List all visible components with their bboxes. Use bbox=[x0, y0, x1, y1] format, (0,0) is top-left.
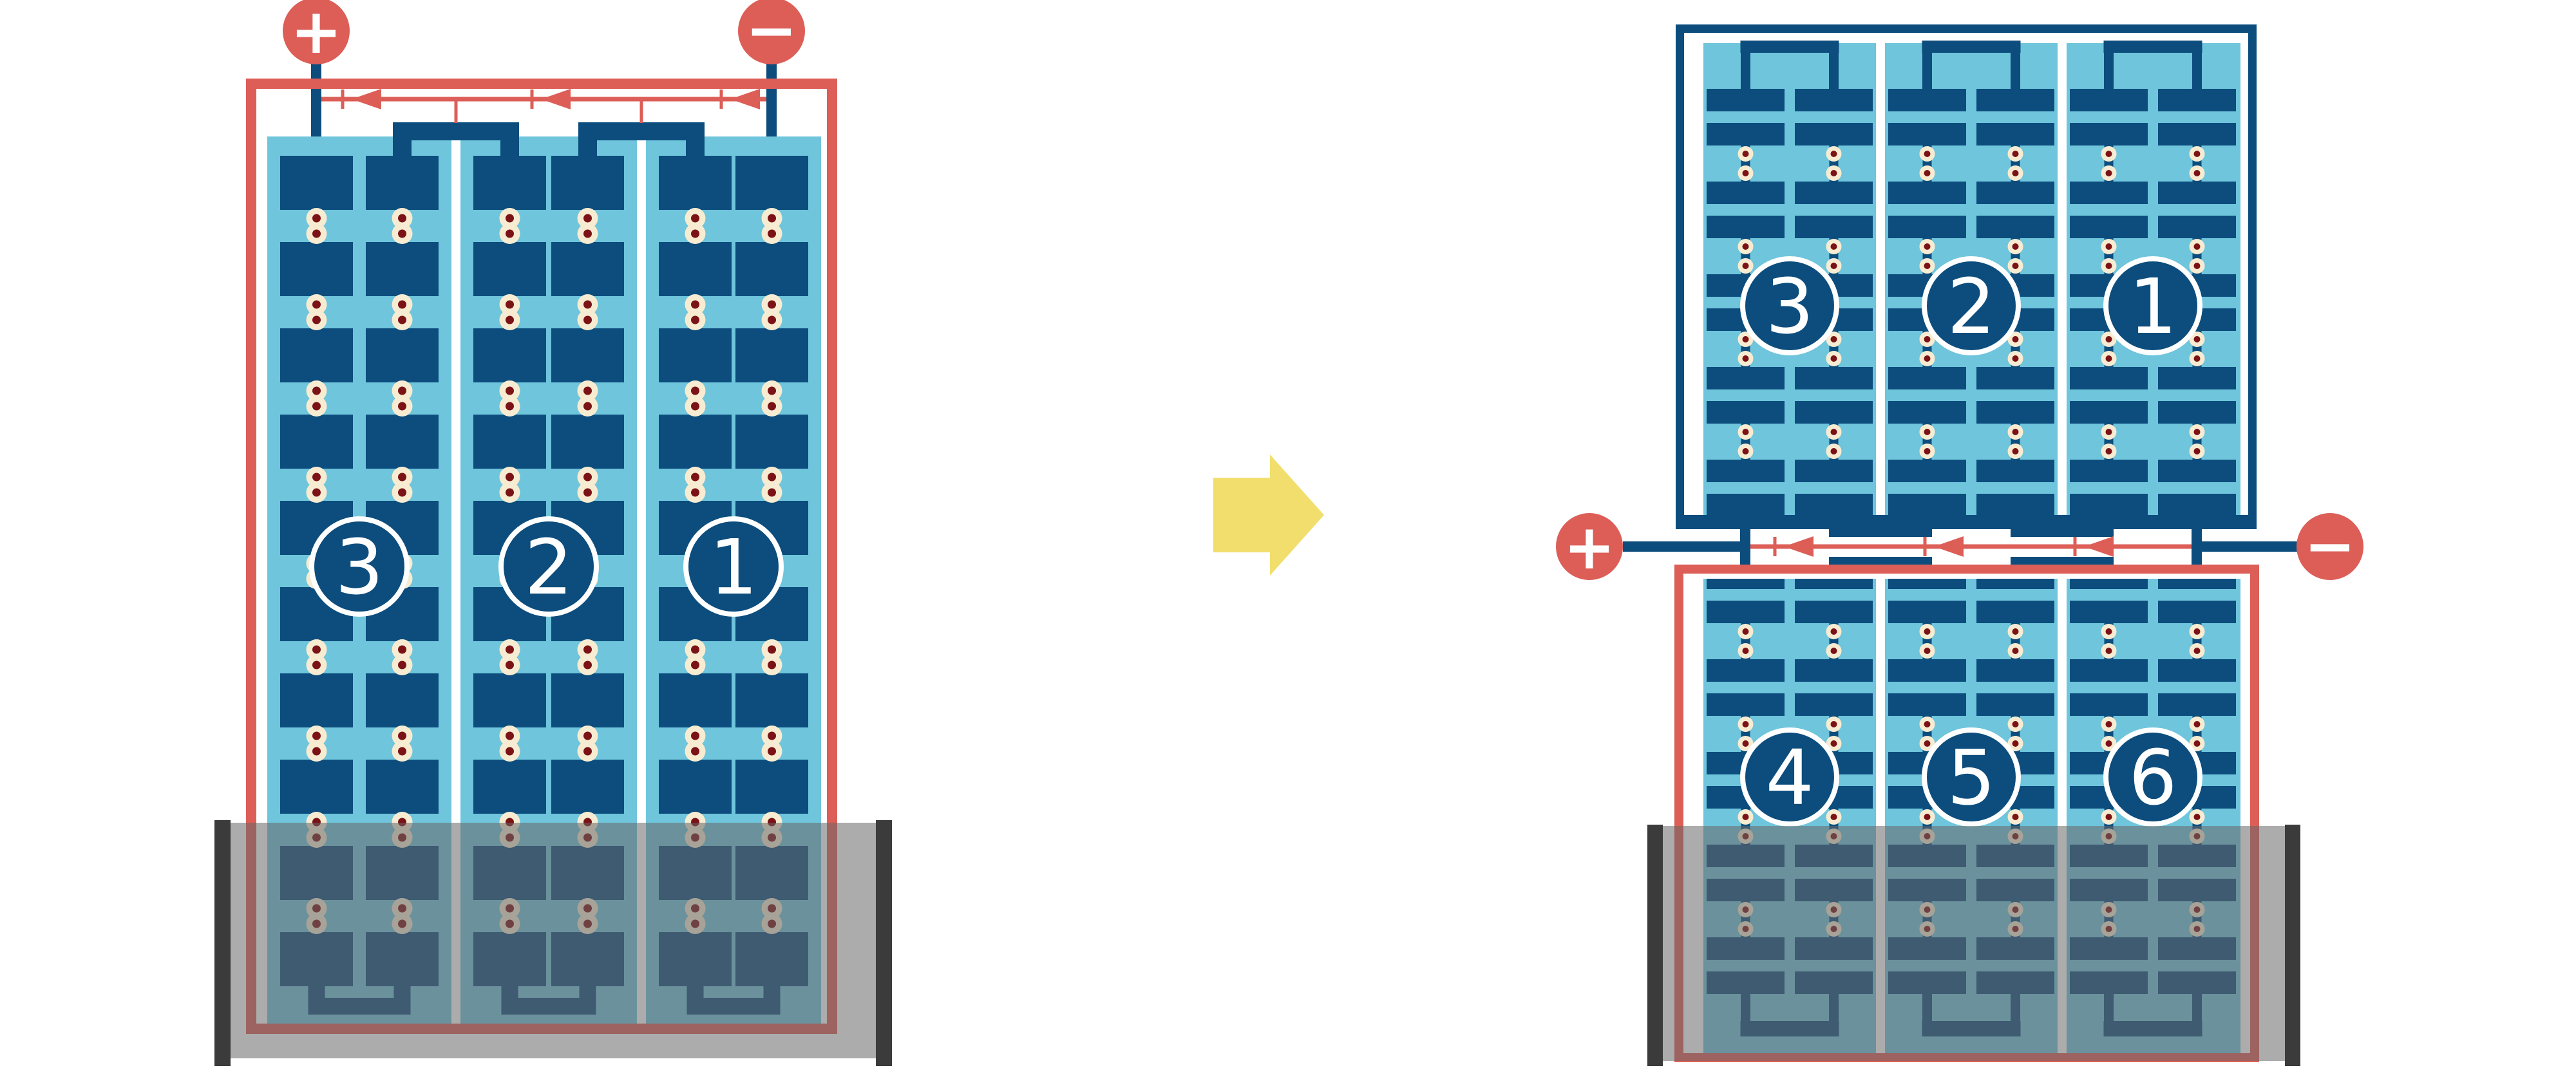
cell-connector-leg bbox=[500, 140, 519, 169]
battery-plate bbox=[2070, 89, 2148, 111]
rivet-pin bbox=[506, 316, 514, 324]
rivet-pin bbox=[1924, 355, 1931, 362]
rivet-pin bbox=[2106, 429, 2112, 435]
rivet-pin bbox=[1924, 814, 1931, 820]
battery-plate bbox=[1707, 659, 1785, 682]
rivet-pin bbox=[691, 661, 699, 670]
left-tray bbox=[214, 820, 892, 1066]
rivet-pin bbox=[1743, 336, 1749, 342]
rivet-pin bbox=[398, 402, 406, 411]
tray-wall-left bbox=[1647, 825, 1663, 1066]
rivet-pin bbox=[1831, 814, 1837, 820]
rivet-pin bbox=[506, 747, 514, 756]
rivet-pin bbox=[312, 301, 321, 309]
rivet-pin bbox=[768, 301, 776, 309]
right-minus-terminal: − bbox=[2297, 510, 2363, 582]
rivet-pin bbox=[1831, 429, 1837, 435]
rivet-pin bbox=[1743, 721, 1749, 727]
battery-plate bbox=[659, 242, 732, 296]
rivet-pin bbox=[2194, 628, 2201, 635]
rivet-pin bbox=[1831, 336, 1837, 342]
battery-plate bbox=[735, 673, 808, 727]
battery-plate bbox=[1707, 460, 1785, 482]
rivet-pin bbox=[583, 402, 592, 411]
rivet-pin bbox=[2106, 721, 2112, 727]
current-arrowhead-icon bbox=[1934, 536, 1964, 557]
rivet-pin bbox=[398, 214, 406, 223]
battery-plate bbox=[1976, 89, 2054, 111]
rivet-pin bbox=[768, 646, 776, 654]
rivet-pin bbox=[1924, 721, 1931, 727]
rivet-pin bbox=[398, 646, 406, 654]
battery-plate bbox=[1888, 182, 1966, 204]
battery-plate bbox=[280, 328, 353, 382]
rivet-pin bbox=[2194, 721, 2201, 727]
battery-plate bbox=[473, 760, 546, 814]
rivet-pin bbox=[2194, 648, 2201, 654]
rivet-pin bbox=[768, 387, 776, 395]
rivet-pin bbox=[398, 747, 406, 756]
rivet-pin bbox=[691, 214, 699, 223]
battery-plate bbox=[1976, 367, 2054, 389]
battery-plate bbox=[473, 415, 546, 469]
u-connector-leg bbox=[1922, 53, 1932, 90]
rivet-pin bbox=[2012, 151, 2019, 157]
u-connector-bar bbox=[2104, 41, 2202, 53]
rivet-pin bbox=[1924, 151, 1931, 157]
battery-plate bbox=[735, 415, 808, 469]
rivet-pin bbox=[1924, 648, 1931, 654]
right-tray bbox=[1647, 825, 2300, 1066]
rivet-pin bbox=[2106, 355, 2112, 362]
rivet-pin bbox=[1924, 243, 1931, 250]
rivet-pin bbox=[1924, 170, 1931, 176]
rivet-pin bbox=[583, 230, 592, 238]
battery-plate bbox=[1888, 89, 1966, 111]
rivet-pin bbox=[398, 316, 406, 324]
rivet-pin bbox=[768, 316, 776, 324]
rivet-pin bbox=[691, 301, 699, 309]
cell-number-label: 3 bbox=[1765, 262, 1814, 351]
rivet-pin bbox=[506, 732, 514, 740]
rivet-pin bbox=[506, 230, 514, 238]
current-arrowhead-icon bbox=[1784, 536, 1814, 557]
cell-number-label: 3 bbox=[335, 523, 383, 612]
u-connector-leg bbox=[2011, 53, 2020, 90]
rivet-pin bbox=[398, 489, 406, 497]
battery-plate bbox=[366, 415, 439, 469]
junction-stub-left bbox=[1740, 529, 1750, 565]
rivet-pin bbox=[2012, 170, 2019, 176]
battery-plate bbox=[2070, 579, 2148, 589]
plus-terminal-label: + bbox=[290, 0, 342, 68]
top-box-bottom-busbar bbox=[1676, 515, 2257, 529]
minus-terminal-label: − bbox=[746, 0, 797, 66]
rivet-pin bbox=[583, 301, 592, 309]
rivet-pin bbox=[583, 747, 592, 756]
rivet-pin bbox=[768, 732, 776, 740]
cell-connector-bar bbox=[578, 122, 705, 140]
right-bottom-badge-6: 6 bbox=[2106, 730, 2200, 824]
current-drop-line bbox=[640, 101, 643, 123]
right-bottom-badge-5: 5 bbox=[1924, 730, 2018, 824]
rivet-pin bbox=[1743, 151, 1749, 157]
rivet-pin bbox=[2194, 429, 2201, 435]
battery-plate bbox=[1795, 659, 1873, 682]
battery-plate bbox=[366, 328, 439, 382]
battery-plate bbox=[2158, 579, 2236, 589]
battery-plate bbox=[659, 328, 732, 382]
junction-stub-right bbox=[2192, 529, 2202, 565]
battery-plate bbox=[2158, 89, 2236, 111]
rivet-pin bbox=[1924, 740, 1931, 747]
left-cell-badge-1: 1 bbox=[686, 519, 781, 614]
battery-plate bbox=[280, 673, 353, 727]
rivet-pin bbox=[398, 473, 406, 482]
tray-wall-left bbox=[214, 820, 231, 1066]
rivet-pin bbox=[506, 489, 514, 497]
rivet-pin bbox=[691, 732, 699, 740]
battery-plate bbox=[551, 242, 624, 296]
rivet-pin bbox=[1831, 628, 1837, 635]
tray-wall-right bbox=[2285, 825, 2300, 1066]
rivet-pin bbox=[506, 402, 514, 411]
battery-plate bbox=[551, 328, 624, 382]
right-plus-terminal: + bbox=[1556, 511, 1623, 583]
rivet-pin bbox=[312, 402, 321, 411]
current-tick bbox=[341, 89, 345, 109]
rivet-pin bbox=[1743, 740, 1749, 747]
battery-plate bbox=[735, 156, 808, 210]
rivet-pin bbox=[1743, 170, 1749, 176]
rivet-pin bbox=[1924, 263, 1931, 269]
rivet-pin bbox=[312, 661, 321, 670]
current-line bbox=[1750, 545, 2192, 549]
current-arrowhead-icon bbox=[730, 89, 760, 109]
rivet-pin bbox=[2106, 628, 2112, 635]
rivet-pin bbox=[1831, 721, 1837, 727]
left-battery-unit: + − 3 2 1 bbox=[214, 0, 892, 1066]
rivet-pin bbox=[1831, 740, 1837, 747]
battery-diagram: + − 3 2 1 bbox=[0, 0, 2576, 1068]
junction-tab bbox=[2011, 557, 2114, 565]
rivet-pin bbox=[768, 402, 776, 411]
battery-plate bbox=[280, 156, 353, 210]
rivet-pin bbox=[1743, 355, 1749, 362]
rivet-pin bbox=[398, 661, 406, 670]
rivet-pin bbox=[2012, 628, 2019, 635]
rivet-pin bbox=[1831, 263, 1837, 269]
battery-plate bbox=[1888, 367, 1966, 389]
right-current-arrow-line bbox=[1750, 536, 2192, 557]
current-tick bbox=[1924, 537, 1927, 556]
current-tick bbox=[2074, 537, 2077, 556]
diagram-canvas: + − 3 2 1 bbox=[0, 0, 2576, 1068]
rivet-pin bbox=[2012, 429, 2019, 435]
rivet-pin bbox=[691, 473, 699, 482]
battery-plate bbox=[1888, 579, 1966, 589]
rivet-pin bbox=[1743, 263, 1749, 269]
battery-plate bbox=[280, 242, 353, 296]
rivet-pin bbox=[768, 747, 776, 756]
battery-plate bbox=[2158, 182, 2236, 204]
rivet-pin bbox=[312, 489, 321, 497]
rivet-pin bbox=[312, 732, 321, 740]
current-arrowhead-icon bbox=[352, 89, 381, 109]
cell-number-label: 2 bbox=[524, 523, 573, 612]
u-connector-leg bbox=[2192, 53, 2202, 90]
u-connector-leg bbox=[1829, 53, 1839, 90]
battery-plate bbox=[1795, 182, 1873, 204]
tray-water-overlay bbox=[1663, 826, 2285, 1061]
rivet-pin bbox=[1831, 355, 1837, 362]
rivet-pin bbox=[2012, 336, 2019, 342]
rivet-pin bbox=[1831, 448, 1837, 454]
current-tick bbox=[720, 89, 723, 109]
rivet-pin bbox=[1831, 648, 1837, 654]
rivet-pin bbox=[2012, 648, 2019, 654]
battery-plate bbox=[2158, 494, 2236, 516]
battery-plate bbox=[1795, 579, 1873, 589]
battery-plate bbox=[2158, 659, 2236, 682]
battery-plate bbox=[2070, 367, 2148, 389]
rivet-pin bbox=[1743, 648, 1749, 654]
rivet-pin bbox=[2012, 740, 2019, 747]
battery-plate bbox=[1976, 460, 2054, 482]
current-arrowhead-icon bbox=[2084, 536, 2114, 557]
rivet-pin bbox=[506, 473, 514, 482]
battery-plate bbox=[473, 673, 546, 727]
battery-plate bbox=[366, 760, 439, 814]
battery-plate bbox=[473, 242, 546, 296]
rivet-pin bbox=[2012, 814, 2019, 820]
rivet-pin bbox=[691, 316, 699, 324]
battery-plate bbox=[2070, 659, 2148, 682]
battery-plate bbox=[735, 328, 808, 382]
battery-plate bbox=[1795, 89, 1873, 111]
battery-plate bbox=[1795, 367, 1873, 389]
rivet-pin bbox=[2194, 448, 2201, 454]
battery-plate bbox=[551, 415, 624, 469]
rivet-pin bbox=[1831, 243, 1837, 250]
rivet-pin bbox=[691, 747, 699, 756]
battery-plate bbox=[280, 760, 353, 814]
rivet-pin bbox=[398, 387, 406, 395]
rivet-pin bbox=[1831, 170, 1837, 176]
battery-plate bbox=[366, 242, 439, 296]
cell-number-label: 6 bbox=[2128, 733, 2177, 822]
rivet-pin bbox=[1743, 448, 1749, 454]
rivet-pin bbox=[768, 661, 776, 670]
rivet-pin bbox=[583, 732, 592, 740]
current-drop-line bbox=[455, 101, 458, 123]
current-arrowhead-icon bbox=[541, 89, 571, 109]
battery-plate bbox=[1888, 460, 1966, 482]
rivet-pin bbox=[1924, 336, 1931, 342]
battery-plate bbox=[473, 328, 546, 382]
battery-plate bbox=[1707, 494, 1785, 516]
rivet-pin bbox=[312, 646, 321, 654]
rivet-pin bbox=[2194, 355, 2201, 362]
plus-terminal-label: + bbox=[1564, 511, 1615, 583]
rivet-pin bbox=[1743, 814, 1749, 820]
rivet-pin bbox=[2194, 263, 2201, 269]
junction-tab bbox=[1829, 557, 1932, 565]
rivet-pin bbox=[1743, 243, 1749, 250]
rivet-pin bbox=[506, 661, 514, 670]
right-top-badge-3: 3 bbox=[1743, 259, 1837, 353]
rivet-pin bbox=[2012, 263, 2019, 269]
transform-arrow-icon bbox=[1213, 454, 1324, 576]
rivet-pin bbox=[2106, 243, 2112, 250]
rivet-pin bbox=[506, 214, 514, 223]
battery-plate bbox=[1707, 367, 1785, 389]
rivet-pin bbox=[768, 489, 776, 497]
top-box-cell-separator bbox=[2058, 43, 2067, 516]
current-tick bbox=[1774, 537, 1777, 556]
rivet-pin bbox=[2106, 448, 2112, 454]
tray-wall-right bbox=[876, 820, 892, 1066]
u-connector-leg bbox=[1741, 53, 1750, 90]
battery-plate bbox=[1707, 579, 1785, 589]
battery-plate bbox=[1976, 182, 2054, 204]
u-connector-leg bbox=[2104, 53, 2114, 90]
battery-plate bbox=[659, 673, 732, 727]
battery-plate bbox=[2158, 460, 2236, 482]
rivet-pin bbox=[2106, 151, 2112, 157]
rivet-pin bbox=[2106, 170, 2112, 176]
cell-number-label: 2 bbox=[1947, 262, 1995, 351]
rivet-pin bbox=[1924, 448, 1931, 454]
cell-number-label: 1 bbox=[709, 523, 757, 612]
rivet-pin bbox=[768, 473, 776, 482]
battery-plate bbox=[551, 760, 624, 814]
rivet-pin bbox=[2012, 243, 2019, 250]
junction-tab bbox=[2011, 529, 2114, 537]
battery-plate bbox=[1976, 494, 2054, 516]
plus-terminal-bar bbox=[1623, 541, 1740, 552]
battery-plate bbox=[2158, 367, 2236, 389]
cell-connector-bar bbox=[393, 122, 519, 140]
rivet-pin bbox=[691, 387, 699, 395]
rivet-pin bbox=[312, 316, 321, 324]
rivet-pin bbox=[768, 230, 776, 238]
rivet-pin bbox=[583, 646, 592, 654]
rivet-pin bbox=[2106, 263, 2112, 269]
battery-plate bbox=[1888, 494, 1966, 516]
battery-plate bbox=[2070, 494, 2148, 516]
battery-plate bbox=[1976, 659, 2054, 682]
rivet-pin bbox=[1743, 628, 1749, 635]
rivet-pin bbox=[583, 489, 592, 497]
battery-plate bbox=[659, 415, 732, 469]
rivet-pin bbox=[312, 473, 321, 482]
battery-plate bbox=[735, 760, 808, 814]
rivet-pin bbox=[1924, 628, 1931, 635]
rivet-pin bbox=[768, 214, 776, 223]
rivet-pin bbox=[2012, 448, 2019, 454]
rivet-pin bbox=[2194, 740, 2201, 747]
rivet-pin bbox=[691, 230, 699, 238]
battery-plate bbox=[1707, 182, 1785, 204]
u-connector-bar bbox=[1741, 41, 1839, 53]
rivet-pin bbox=[2194, 243, 2201, 250]
left-cell-badge-2: 2 bbox=[501, 519, 596, 614]
right-bottom-badge-4: 4 bbox=[1743, 730, 1837, 824]
rivet-pin bbox=[312, 747, 321, 756]
rivet-pin bbox=[506, 301, 514, 309]
rivet-pin bbox=[1743, 429, 1749, 435]
right-battery-unit: + − 3 2 1 bbox=[1556, 29, 2363, 1067]
battery-plate bbox=[2070, 460, 2148, 482]
cell-connector-leg bbox=[686, 140, 705, 169]
minus-terminal-label: − bbox=[2304, 510, 2356, 582]
junction-tab bbox=[1829, 529, 1932, 537]
battery-plate bbox=[2070, 182, 2148, 204]
left-current-arrow-line bbox=[321, 89, 766, 123]
battery-plate bbox=[735, 242, 808, 296]
rivet-pin bbox=[2106, 740, 2112, 747]
rivet-pin bbox=[398, 230, 406, 238]
rivet-pin bbox=[398, 732, 406, 740]
tray-water-overlay bbox=[231, 823, 876, 1058]
rivet-pin bbox=[691, 646, 699, 654]
rivet-pin bbox=[312, 230, 321, 238]
rivet-pin bbox=[2106, 814, 2112, 820]
right-top-badge-1: 1 bbox=[2106, 259, 2200, 353]
top-box-cell-separator bbox=[1876, 43, 1885, 516]
battery-plate bbox=[1707, 89, 1785, 111]
rivet-pin bbox=[583, 316, 592, 324]
battery-plate bbox=[1976, 579, 2054, 589]
battery-plate bbox=[659, 760, 732, 814]
rivet-pin bbox=[691, 402, 699, 411]
left-minus-terminal: − bbox=[738, 0, 805, 66]
u-connector-bar bbox=[1922, 41, 2021, 53]
cell-number-label: 1 bbox=[2128, 262, 2177, 351]
rivet-pin bbox=[583, 214, 592, 223]
rivet-pin bbox=[1924, 429, 1931, 435]
rivet-pin bbox=[583, 661, 592, 670]
rivet-pin bbox=[2106, 648, 2112, 654]
left-cell-badge-3: 3 bbox=[312, 519, 407, 614]
minus-terminal-bar bbox=[2202, 541, 2297, 552]
battery-plate bbox=[1795, 460, 1873, 482]
rivet-pin bbox=[506, 387, 514, 395]
current-tick bbox=[531, 89, 534, 109]
rivet-pin bbox=[1831, 151, 1837, 157]
right-top-badge-2: 2 bbox=[1924, 259, 2018, 353]
battery-plate bbox=[1795, 494, 1873, 516]
battery-plate bbox=[280, 415, 353, 469]
rivet-pin bbox=[583, 387, 592, 395]
rivet-pin bbox=[2012, 355, 2019, 362]
rivet-pin bbox=[2194, 170, 2201, 176]
cell-connector-leg bbox=[393, 140, 412, 169]
rivet-pin bbox=[2194, 814, 2201, 820]
battery-plate bbox=[1888, 659, 1966, 682]
cell-connector-leg bbox=[578, 140, 597, 169]
battery-plate bbox=[551, 673, 624, 727]
rivet-pin bbox=[583, 473, 592, 482]
rivet-pin bbox=[2194, 151, 2201, 157]
rivet-pin bbox=[2194, 336, 2201, 342]
rivet-pin bbox=[398, 301, 406, 309]
rivet-pin bbox=[691, 489, 699, 497]
rivet-pin bbox=[312, 214, 321, 223]
cell-number-label: 4 bbox=[1765, 733, 1814, 822]
cell-number-label: 5 bbox=[1947, 733, 1995, 822]
